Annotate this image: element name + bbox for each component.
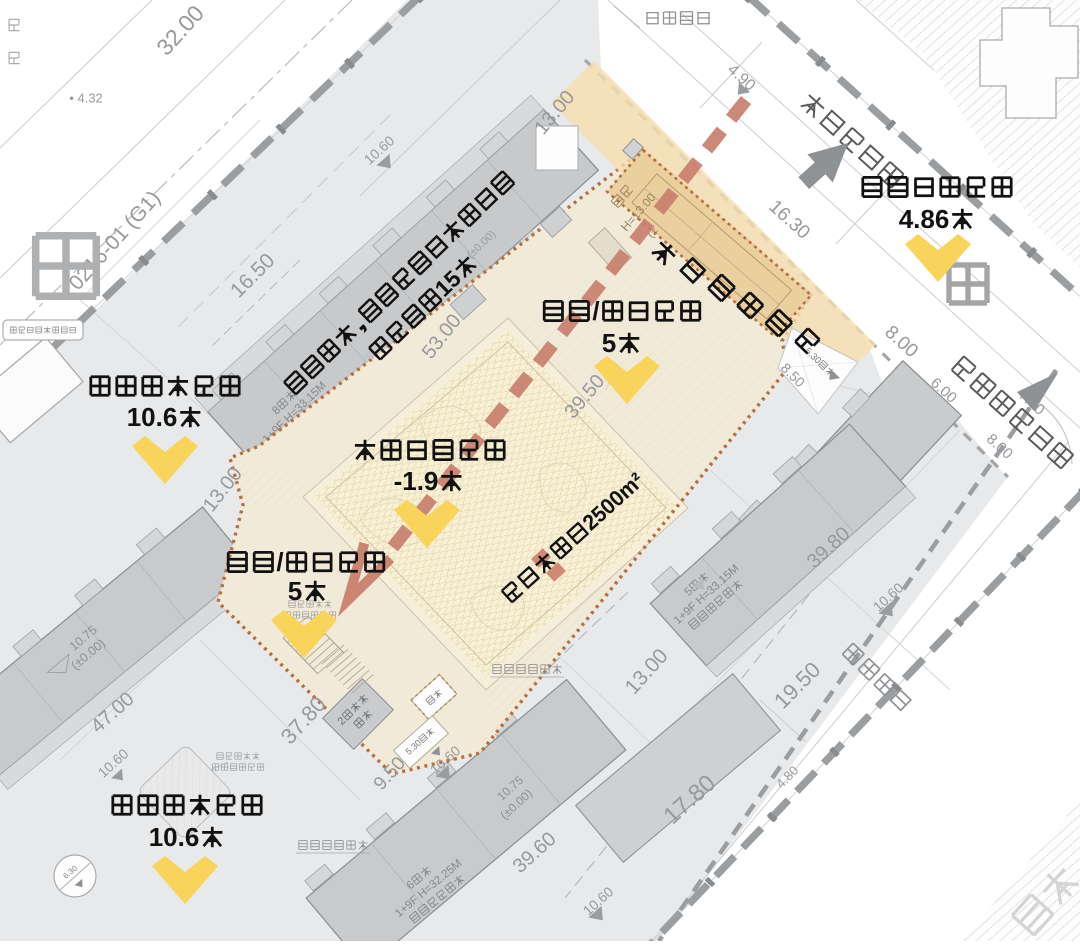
svg-text:-1.9: -1.9 bbox=[394, 466, 439, 496]
svg-text:10.6: 10.6 bbox=[149, 822, 200, 852]
svg-text:4.86: 4.86 bbox=[899, 204, 950, 234]
svg-text:/: / bbox=[592, 296, 599, 326]
svg-text:10.6: 10.6 bbox=[127, 402, 178, 432]
svg-text:/: / bbox=[276, 547, 283, 577]
svg-text:5: 5 bbox=[288, 576, 303, 606]
svg-text:• 4.32: • 4.32 bbox=[69, 91, 103, 106]
svg-text:5: 5 bbox=[602, 328, 617, 358]
